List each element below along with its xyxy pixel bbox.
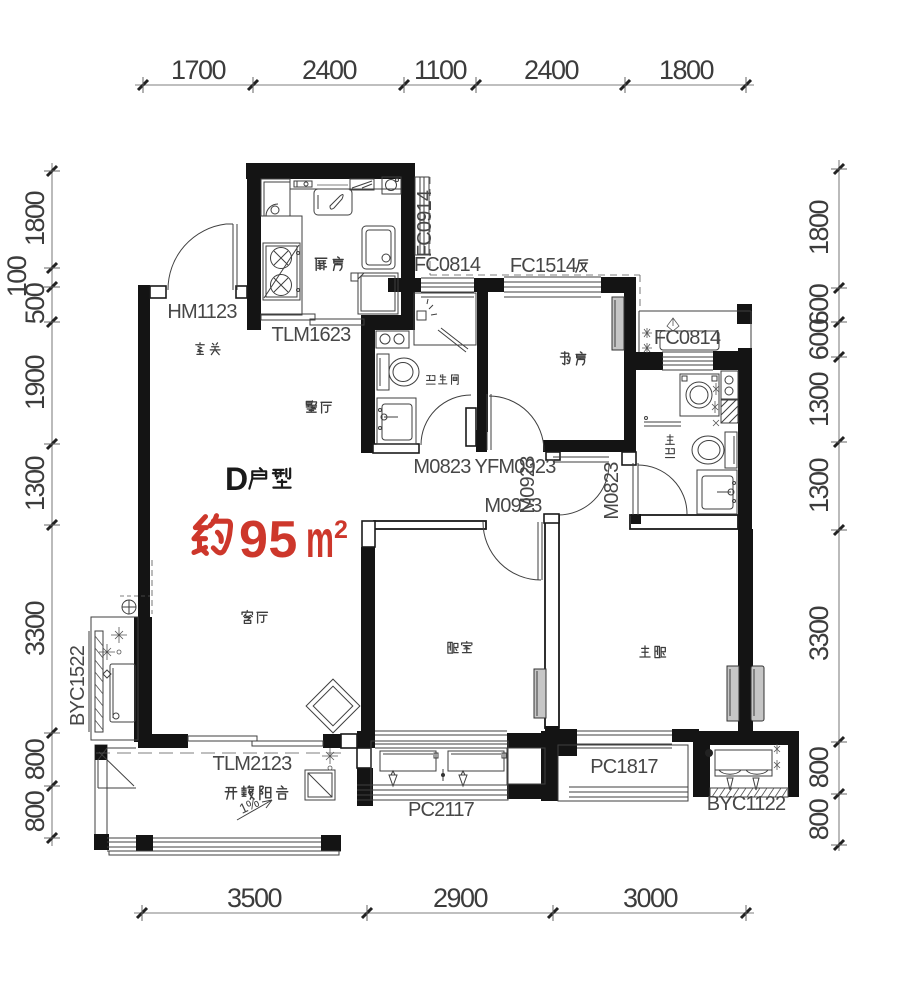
svg-text:M0823: M0823 (601, 462, 623, 520)
svg-text:3300: 3300 (804, 606, 834, 661)
svg-text:500: 500 (20, 283, 50, 324)
svg-text:m: m (306, 511, 334, 569)
svg-text:FC0814: FC0814 (414, 254, 481, 276)
svg-text:PC2117: PC2117 (408, 799, 475, 821)
svg-text:1300: 1300 (20, 456, 50, 511)
svg-text:2400: 2400 (524, 55, 579, 85)
svg-text:BYC1122: BYC1122 (707, 793, 786, 815)
svg-text:PC1817: PC1817 (590, 756, 658, 778)
svg-text:2400: 2400 (302, 55, 357, 85)
svg-text:TLM2123: TLM2123 (213, 753, 293, 775)
svg-text:D: D (225, 461, 248, 497)
svg-text:1300: 1300 (804, 372, 834, 427)
svg-text:BYC1522: BYC1522 (67, 645, 89, 726)
svg-text:800: 800 (804, 799, 834, 840)
svg-text:1700: 1700 (171, 55, 226, 85)
svg-text:95: 95 (239, 511, 298, 569)
svg-text:800: 800 (20, 791, 50, 832)
svg-text:M0823: M0823 (413, 456, 471, 478)
svg-text:800: 800 (20, 739, 50, 780)
svg-text:600: 600 (804, 319, 834, 360)
svg-text:FC0814: FC0814 (654, 327, 721, 349)
svg-text:M0923: M0923 (517, 456, 539, 514)
svg-text:1100: 1100 (414, 55, 467, 85)
svg-text:3500: 3500 (227, 883, 282, 913)
svg-text:1300: 1300 (804, 458, 834, 513)
svg-text:YFM0923: YFM0923 (474, 456, 556, 478)
svg-text:600: 600 (804, 284, 834, 325)
svg-text:3300: 3300 (20, 601, 50, 656)
svg-text:TLM1623: TLM1623 (272, 324, 352, 346)
svg-text:800: 800 (804, 747, 834, 788)
svg-text:1800: 1800 (804, 200, 834, 255)
svg-text:1800: 1800 (659, 55, 714, 85)
svg-text:FC0914: FC0914 (414, 190, 436, 257)
svg-text:3000: 3000 (623, 883, 678, 913)
svg-text:2: 2 (334, 516, 348, 544)
svg-text:HM1123: HM1123 (167, 301, 237, 323)
svg-text:1900: 1900 (20, 355, 50, 410)
svg-text:FC1514: FC1514 (510, 255, 577, 277)
svg-text:1800: 1800 (20, 191, 50, 246)
svg-text:2900: 2900 (433, 883, 488, 913)
